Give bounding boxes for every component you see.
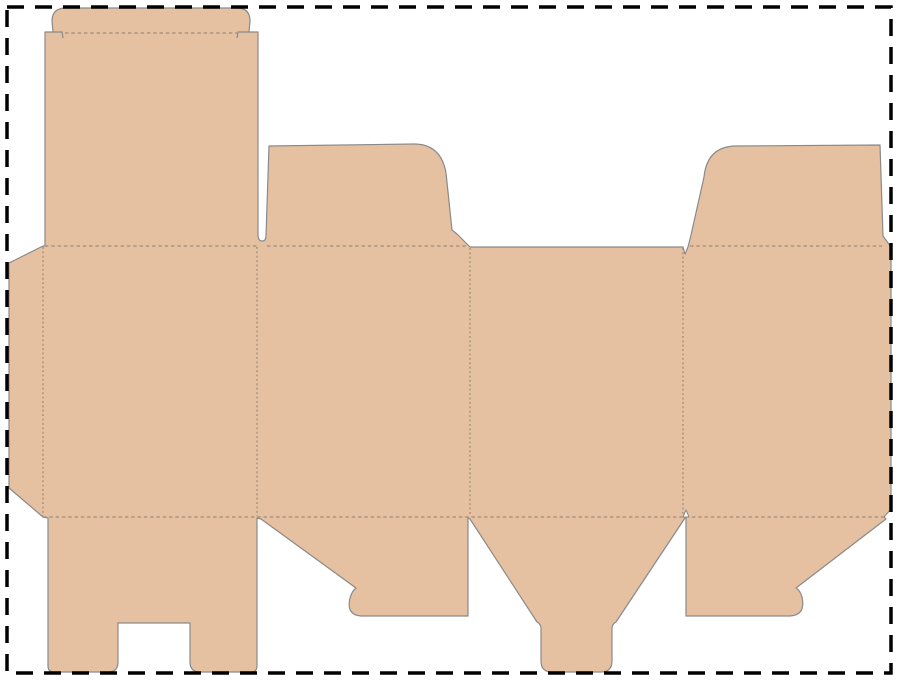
- box-dieline-drawing: [0, 0, 900, 681]
- dieline-template-page: [0, 0, 900, 681]
- dieline-cut-outline: [9, 8, 891, 672]
